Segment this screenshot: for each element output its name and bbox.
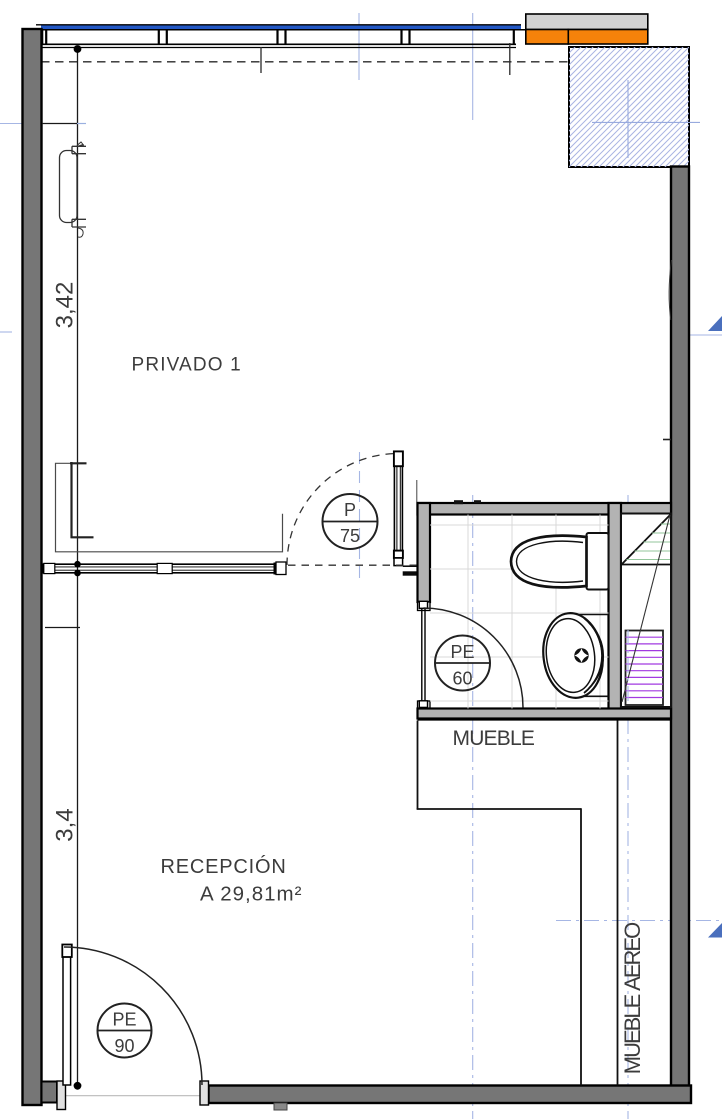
svg-text:MUEBLE AEREO: MUEBLE AEREO (620, 922, 645, 1074)
svg-text:RECEPCIÓN: RECEPCIÓN (161, 855, 287, 878)
svg-text:3,4: 3,4 (51, 808, 78, 841)
svg-text:PE: PE (450, 642, 474, 662)
svg-text:90: 90 (114, 1036, 134, 1056)
svg-text:PE: PE (112, 1010, 136, 1030)
svg-text:3,42: 3,42 (51, 282, 78, 329)
svg-text:MUEBLE: MUEBLE (453, 727, 535, 750)
svg-text:PRIVADO 1: PRIVADO 1 (132, 355, 242, 376)
svg-text:75: 75 (340, 526, 360, 546)
svg-text:60: 60 (452, 669, 472, 689)
svg-text:P: P (344, 500, 356, 520)
svg-text:A 29,81m²: A 29,81m² (200, 883, 302, 906)
